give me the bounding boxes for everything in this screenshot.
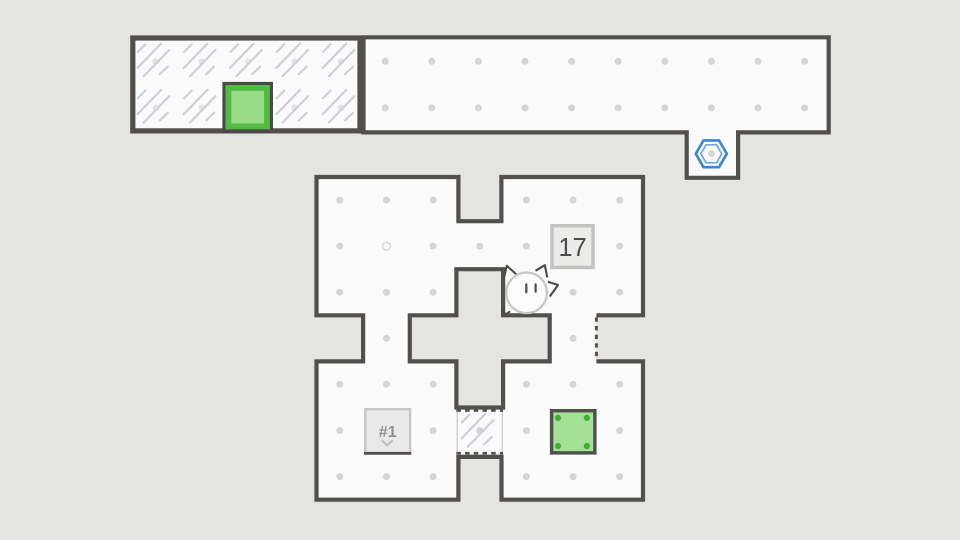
svg-text:#1: #1 — [379, 424, 397, 441]
svg-text:17: 17 — [558, 234, 586, 262]
